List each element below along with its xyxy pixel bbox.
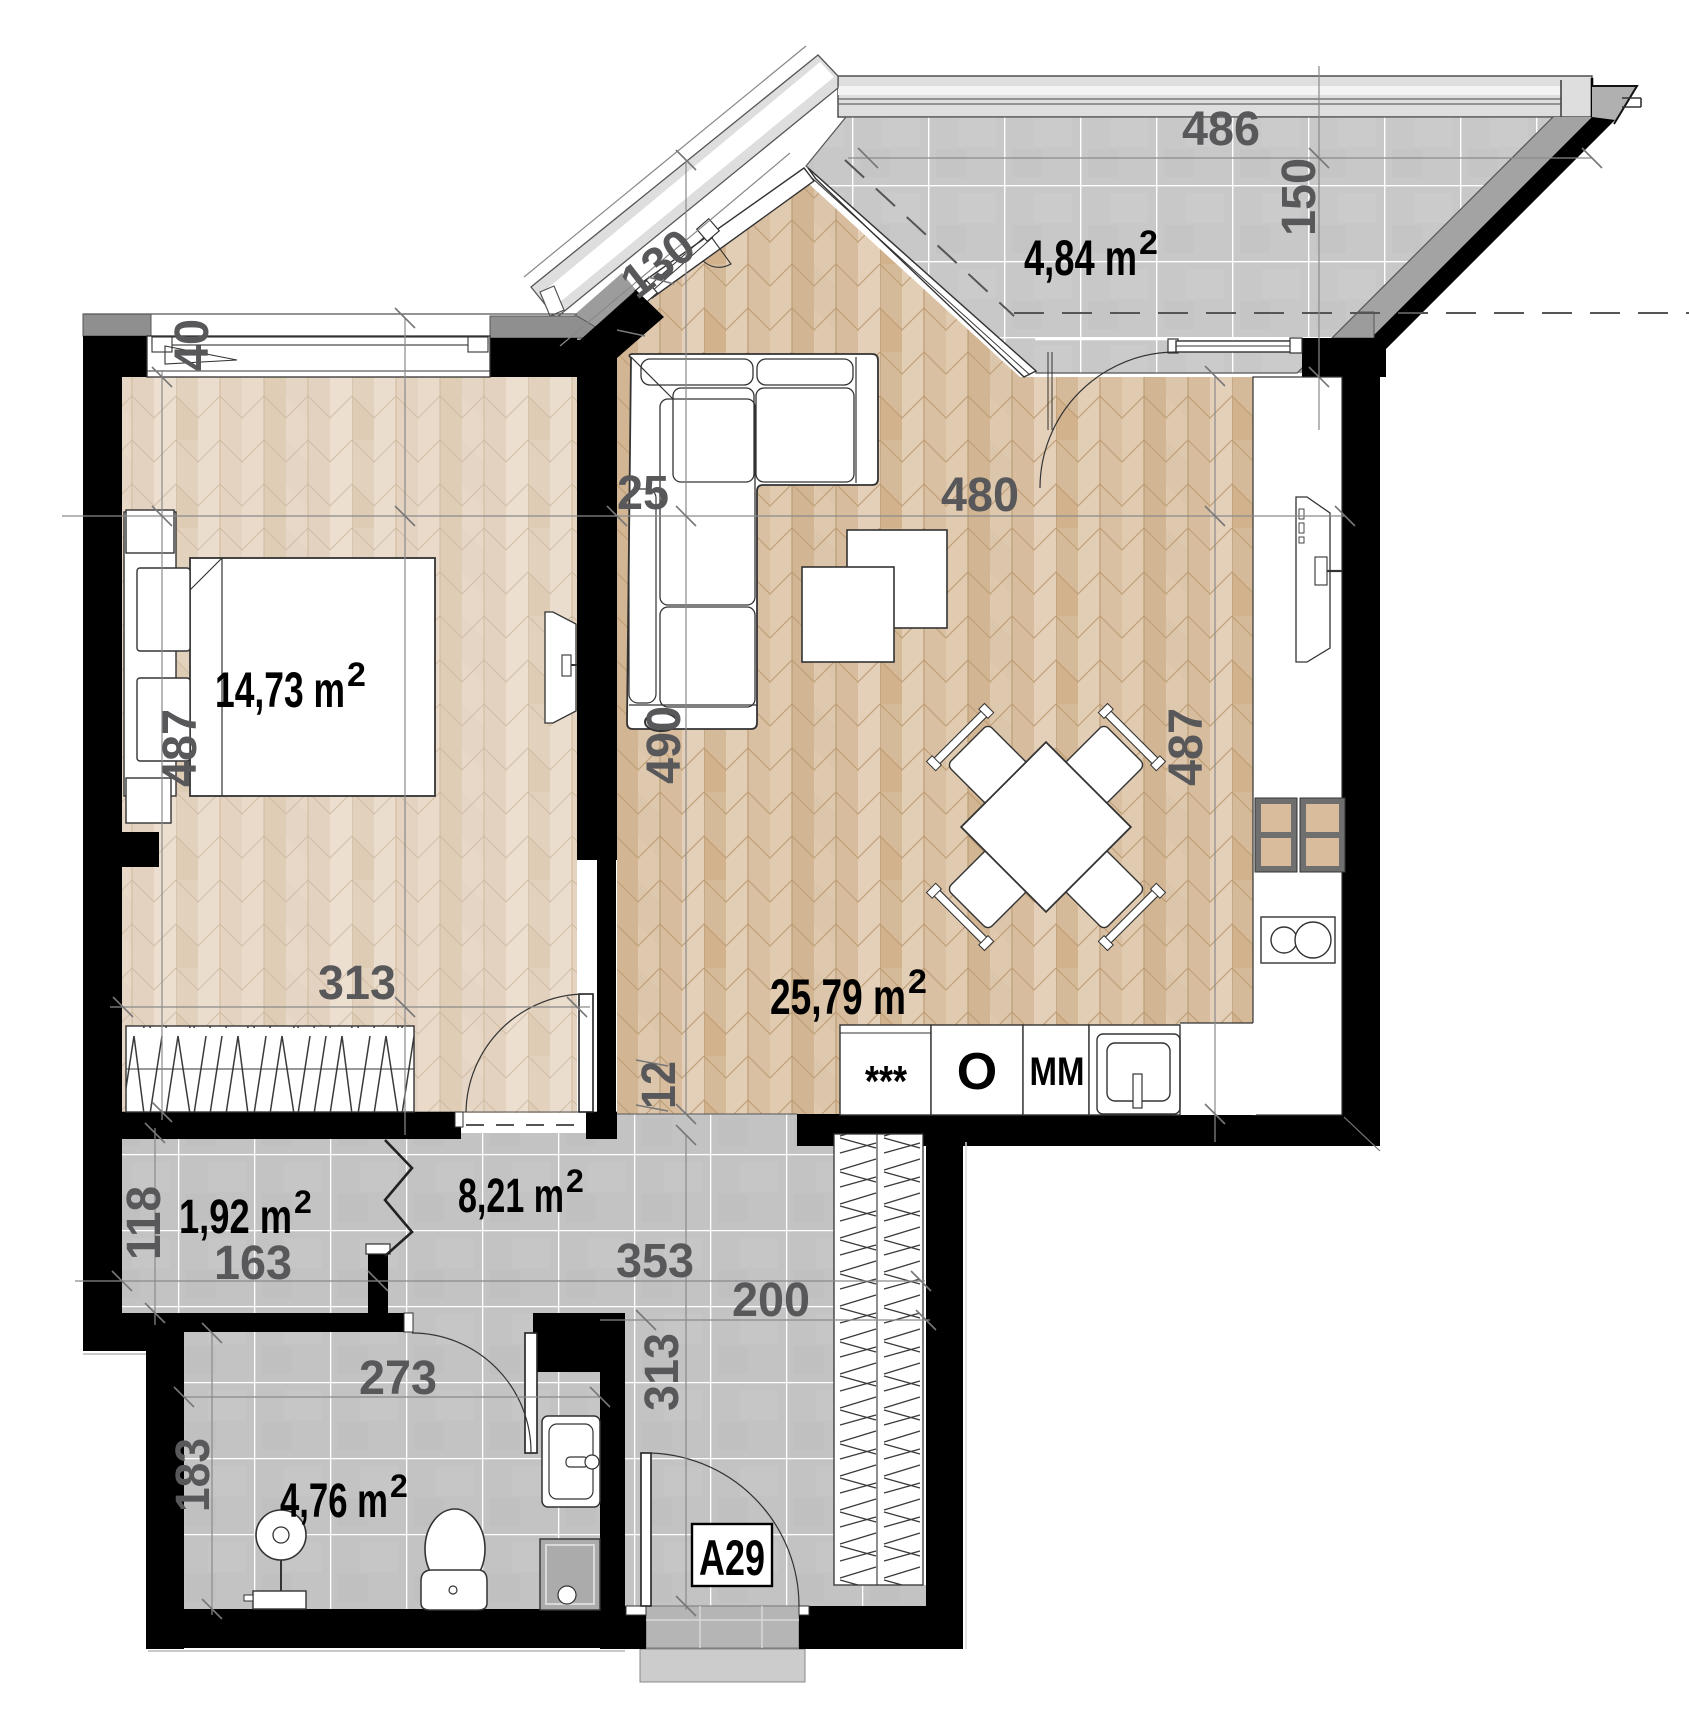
svg-text:***: *** bbox=[865, 1057, 908, 1106]
svg-text:150: 150 bbox=[1273, 158, 1326, 236]
svg-text:313: 313 bbox=[318, 957, 396, 1010]
svg-text:163: 163 bbox=[214, 1237, 292, 1290]
svg-text:353: 353 bbox=[616, 1235, 694, 1288]
svg-text:12: 12 bbox=[633, 1061, 686, 1109]
svg-text:40: 40 bbox=[166, 319, 219, 371]
svg-text:8,21 m: 8,21 m bbox=[458, 1170, 564, 1223]
svg-text:2: 2 bbox=[294, 1184, 312, 1220]
svg-text:487: 487 bbox=[154, 709, 207, 787]
svg-text:4,84 m: 4,84 m bbox=[1024, 230, 1137, 286]
svg-text:2: 2 bbox=[390, 1468, 408, 1504]
svg-text:200: 200 bbox=[732, 1274, 810, 1327]
svg-text:O: O bbox=[957, 1043, 997, 1101]
svg-text:4,76 m: 4,76 m bbox=[280, 1475, 388, 1528]
svg-text:2: 2 bbox=[908, 963, 927, 1001]
svg-text:480: 480 bbox=[941, 469, 1019, 522]
svg-text:14,73 m: 14,73 m bbox=[215, 662, 345, 718]
svg-text:183: 183 bbox=[167, 1438, 220, 1512]
svg-text:313: 313 bbox=[636, 1333, 689, 1411]
svg-text:2: 2 bbox=[347, 656, 366, 694]
svg-text:273: 273 bbox=[359, 1352, 437, 1405]
svg-text:2: 2 bbox=[566, 1163, 584, 1199]
svg-text:486: 486 bbox=[1182, 103, 1260, 156]
svg-text:2: 2 bbox=[1139, 224, 1158, 262]
svg-text:118: 118 bbox=[118, 1186, 171, 1260]
svg-text:490: 490 bbox=[638, 706, 691, 784]
svg-text:25: 25 bbox=[617, 467, 669, 520]
svg-text:A29: A29 bbox=[699, 1530, 765, 1586]
svg-text:487: 487 bbox=[1160, 708, 1213, 786]
svg-text:MM: MM bbox=[1030, 1050, 1085, 1094]
svg-text:25,79 m: 25,79 m bbox=[770, 969, 906, 1025]
